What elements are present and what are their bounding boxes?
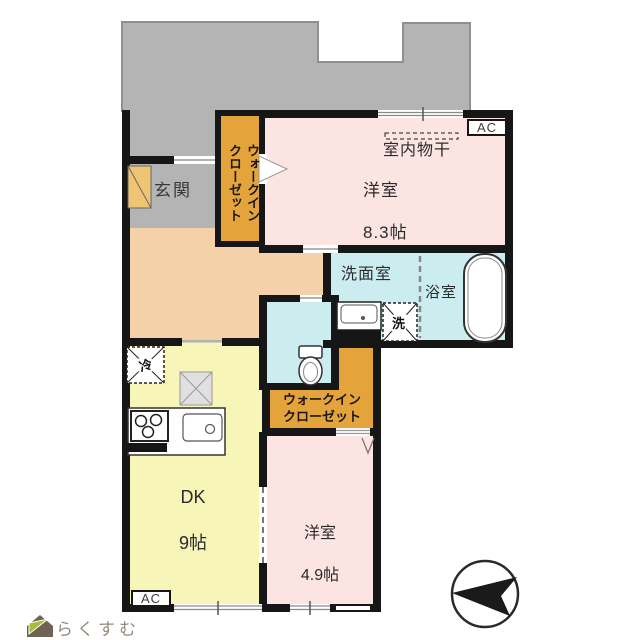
- entrance-label: 玄関: [154, 180, 192, 201]
- vanity-sink: [337, 302, 381, 340]
- dk-opening: [182, 340, 222, 343]
- bedroom1-size: 8.3帖: [363, 222, 408, 243]
- dk-name: DK: [158, 486, 228, 509]
- indoor-drying-label: 室内物干: [383, 141, 451, 161]
- dk-label: DK 9帖: [158, 463, 228, 578]
- bathroom-label: 浴室: [425, 284, 457, 303]
- brand-text: らくすむ: [56, 615, 140, 640]
- bedroom2-label: 洋室 4.9帖: [282, 502, 358, 607]
- bathtub: [464, 254, 506, 342]
- walk-in-closet1-label: ウォークイン クローゼット: [217, 122, 261, 244]
- washer-glyph: 洗: [391, 313, 406, 332]
- bedroom1-name: 洋室: [363, 180, 408, 201]
- ac-unit-badge-bottom: AC: [131, 590, 171, 607]
- kitchen-sink: [183, 414, 222, 441]
- bedroom1-label: 洋室 8.3帖: [363, 159, 408, 264]
- bedroom2-size: 4.9帖: [282, 565, 358, 586]
- hatch-square: [180, 372, 212, 405]
- floor-plan: 玄関 ウォークイン クローゼット 室内物干 洋室 8.3帖 洗面室 浴室 ウォー…: [0, 0, 640, 640]
- washroom-label: 洗面室: [341, 265, 392, 285]
- kitchen-counter: [127, 408, 225, 455]
- bedroom2-name: 洋室: [282, 523, 358, 544]
- ac-unit-badge-top: AC: [467, 119, 507, 136]
- washer-char: 洗: [391, 316, 406, 331]
- compass: [452, 561, 518, 627]
- dk-size: 9帖: [158, 532, 228, 555]
- toilet: [299, 346, 322, 385]
- brand-house-icon: [27, 615, 53, 637]
- shoe-cabinet: [128, 166, 151, 208]
- walk-in-closet2-label: ウォークイン クローゼット: [270, 391, 374, 425]
